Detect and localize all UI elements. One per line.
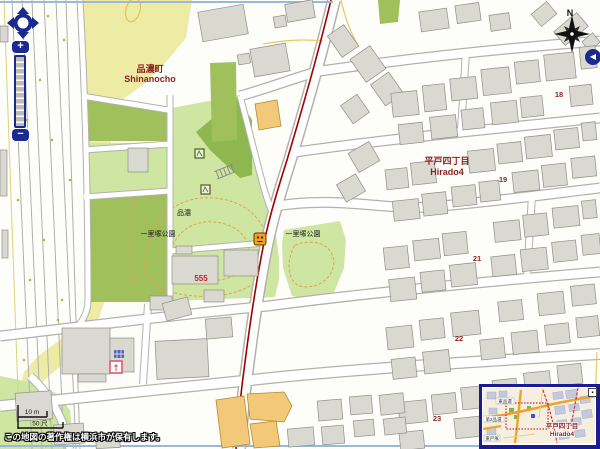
park-sublabel: 品濃 bbox=[177, 208, 191, 217]
zoom-in-button[interactable]: + bbox=[12, 41, 29, 53]
scale-bar: 10 m 50 尺 bbox=[14, 399, 84, 433]
minimap-facility bbox=[531, 414, 535, 418]
green-road-strip bbox=[210, 62, 237, 142]
scale-shaku-label: 50 尺 bbox=[32, 420, 48, 428]
zoom-out-button[interactable]: − bbox=[12, 129, 29, 141]
pan-control[interactable] bbox=[6, 6, 40, 40]
pan-up-icon bbox=[17, 7, 29, 14]
map-application: 品濃町 Shinanocho 平戸四丁目 Hirado4 一里塚公園 一里塚公園… bbox=[0, 0, 600, 449]
minimap-place-label: 東戸塚 bbox=[485, 435, 499, 442]
poi-marker-icon bbox=[254, 233, 266, 245]
town-label-en: Hirado4 bbox=[430, 167, 464, 177]
building-number-label: 555 bbox=[194, 274, 208, 283]
minimap-place-label: 第2品濃 bbox=[485, 416, 502, 423]
minimap-canvas[interactable]: 東品濃 第2品濃 東戸塚 平戸四丁目 Hirado4 bbox=[483, 388, 595, 443]
scale-metric-label: 10 m bbox=[25, 409, 39, 416]
panel-collapse-button[interactable]: ◀ bbox=[585, 49, 600, 65]
pan-right-icon bbox=[32, 17, 39, 29]
minimap-panel: 東品濃 第2品濃 東戸塚 平戸四丁目 Hirado4 ▪ bbox=[479, 384, 600, 449]
green-top-right bbox=[378, 0, 400, 24]
park-label: 一里塚公園 bbox=[141, 229, 176, 238]
block-number: 18 bbox=[555, 90, 563, 99]
zoom-slider[interactable] bbox=[14, 55, 26, 128]
pan-down-icon bbox=[17, 32, 29, 39]
pan-arrows-icon bbox=[7, 7, 39, 39]
svg-text:Hirado4: Hirado4 bbox=[550, 431, 575, 438]
pan-left-icon bbox=[7, 17, 14, 29]
svg-text:平戸四丁目: 平戸四丁目 bbox=[546, 422, 579, 430]
compass: N bbox=[550, 4, 596, 54]
facility-icon-blue bbox=[114, 350, 124, 358]
playground-icon bbox=[201, 185, 210, 194]
town-label-en: Shinanocho bbox=[124, 74, 176, 84]
town-label-jp: 品濃町 bbox=[136, 63, 163, 74]
block-number: 22 bbox=[455, 334, 463, 343]
map-canvas[interactable]: 品濃町 Shinanocho 平戸四丁目 Hirado4 一里塚公園 一里塚公園… bbox=[0, 0, 600, 449]
playground-icon bbox=[195, 149, 204, 158]
minimap-collapse-button[interactable]: ▪ bbox=[588, 388, 597, 397]
minimap-frame: 東品濃 第2品濃 東戸塚 平戸四丁目 Hirado4 bbox=[482, 387, 596, 445]
block-number: 19 bbox=[499, 175, 507, 184]
copyright-notice: この地図の著作権は横浜市が保有します。 bbox=[4, 431, 165, 443]
town-label-jp: 平戸四丁目 bbox=[424, 156, 469, 166]
block-number: 21 bbox=[473, 254, 481, 263]
park-label: 一里塚公園 bbox=[286, 229, 321, 238]
minimap-place-label: 東品濃 bbox=[498, 398, 512, 405]
facility-icon-pink bbox=[110, 361, 122, 373]
compass-rose-icon bbox=[554, 15, 590, 53]
block-number: 23 bbox=[433, 414, 441, 423]
